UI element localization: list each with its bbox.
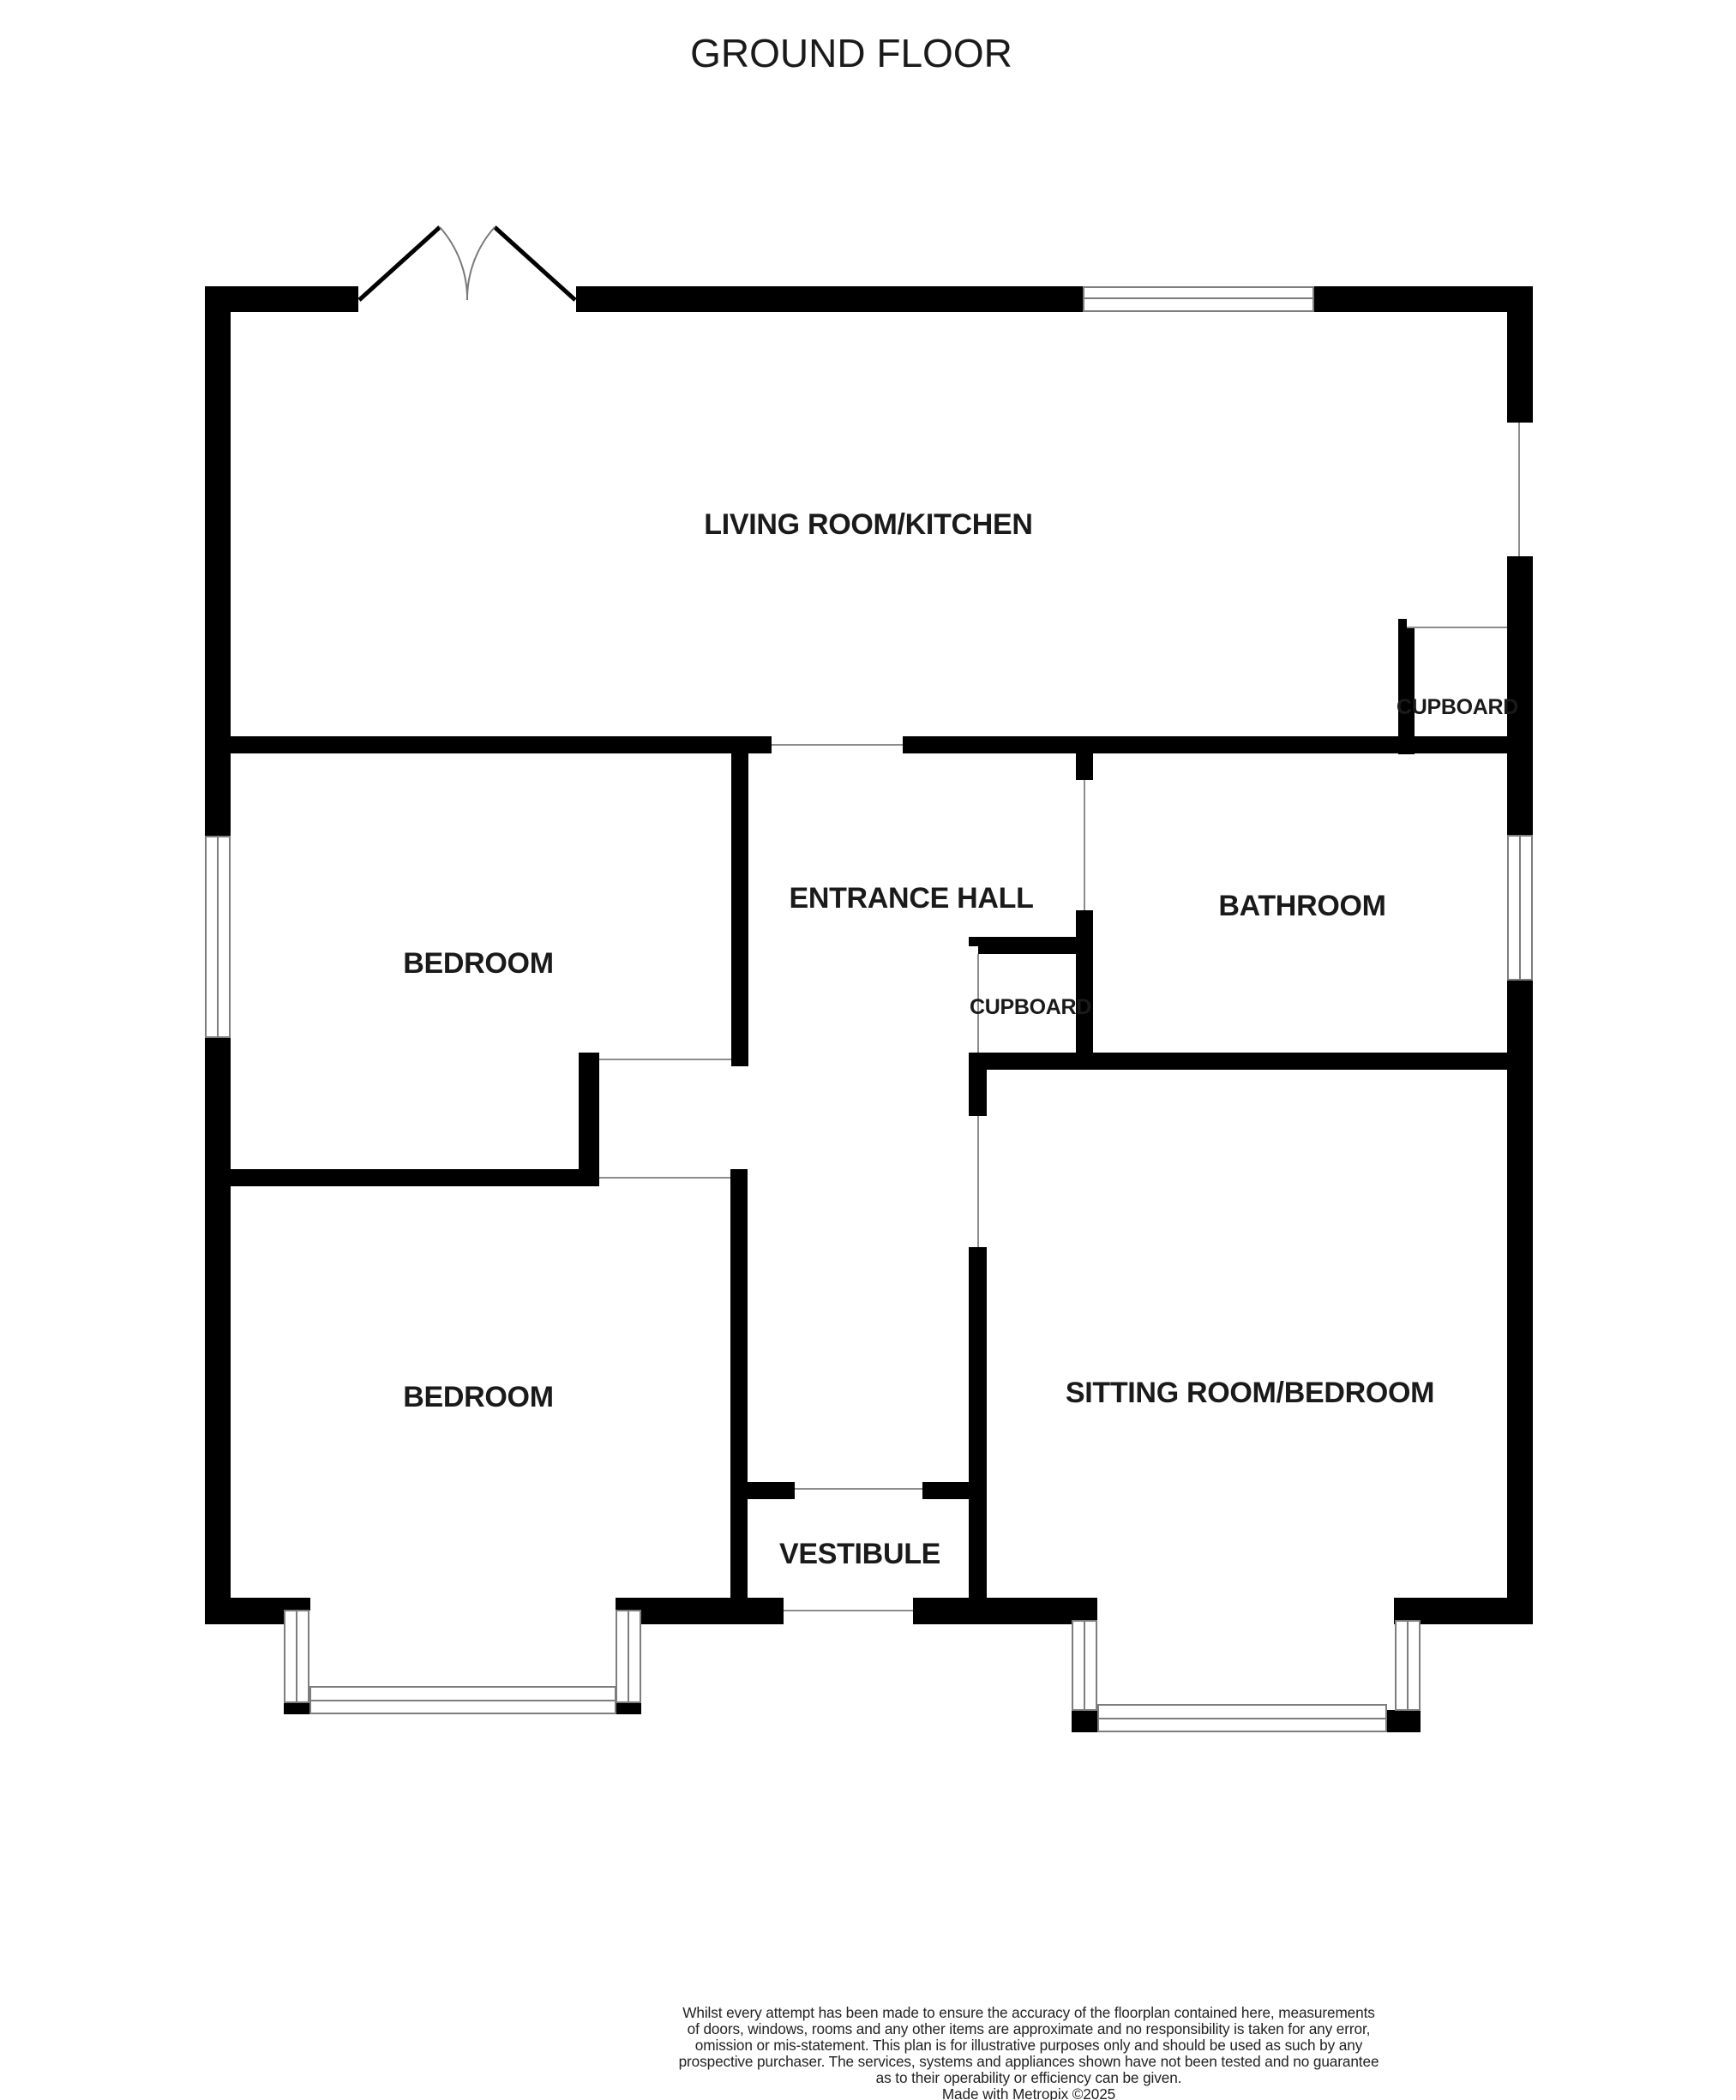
svg-text:VESTIBULE: VESTIBULE [779, 1538, 940, 1570]
svg-text:of doors, windows, rooms and a: of doors, windows, rooms and any other i… [688, 2020, 1371, 2037]
svg-text:CUPBOARD: CUPBOARD [1397, 695, 1518, 719]
svg-text:BATHROOM: BATHROOM [1218, 890, 1385, 922]
svg-text:Whilst every attempt has been: Whilst every attempt has been made to en… [682, 2004, 1375, 2021]
svg-text:as to their operability or eff: as to their operability or efficiency ca… [876, 2069, 1182, 2086]
svg-text:GROUND FLOOR: GROUND FLOOR [690, 31, 1012, 75]
svg-text:ENTRANCE HALL: ENTRANCE HALL [789, 882, 1033, 915]
svg-text:Made with Metropix ©2025: Made with Metropix ©2025 [942, 2085, 1115, 2100]
svg-text:omission or mis-statement. Thi: omission or mis-statement. This plan is … [695, 2037, 1363, 2054]
svg-text:BEDROOM: BEDROOM [403, 947, 553, 980]
svg-text:BEDROOM: BEDROOM [403, 1381, 553, 1413]
svg-text:LIVING ROOM/KITCHEN: LIVING ROOM/KITCHEN [704, 508, 1032, 541]
svg-text:prospective purchaser. The ser: prospective purchaser. The services, sys… [679, 2053, 1379, 2070]
svg-text:CUPBOARD: CUPBOARD [970, 995, 1091, 1019]
svg-text:SITTING ROOM/BEDROOM: SITTING ROOM/BEDROOM [1066, 1377, 1434, 1409]
